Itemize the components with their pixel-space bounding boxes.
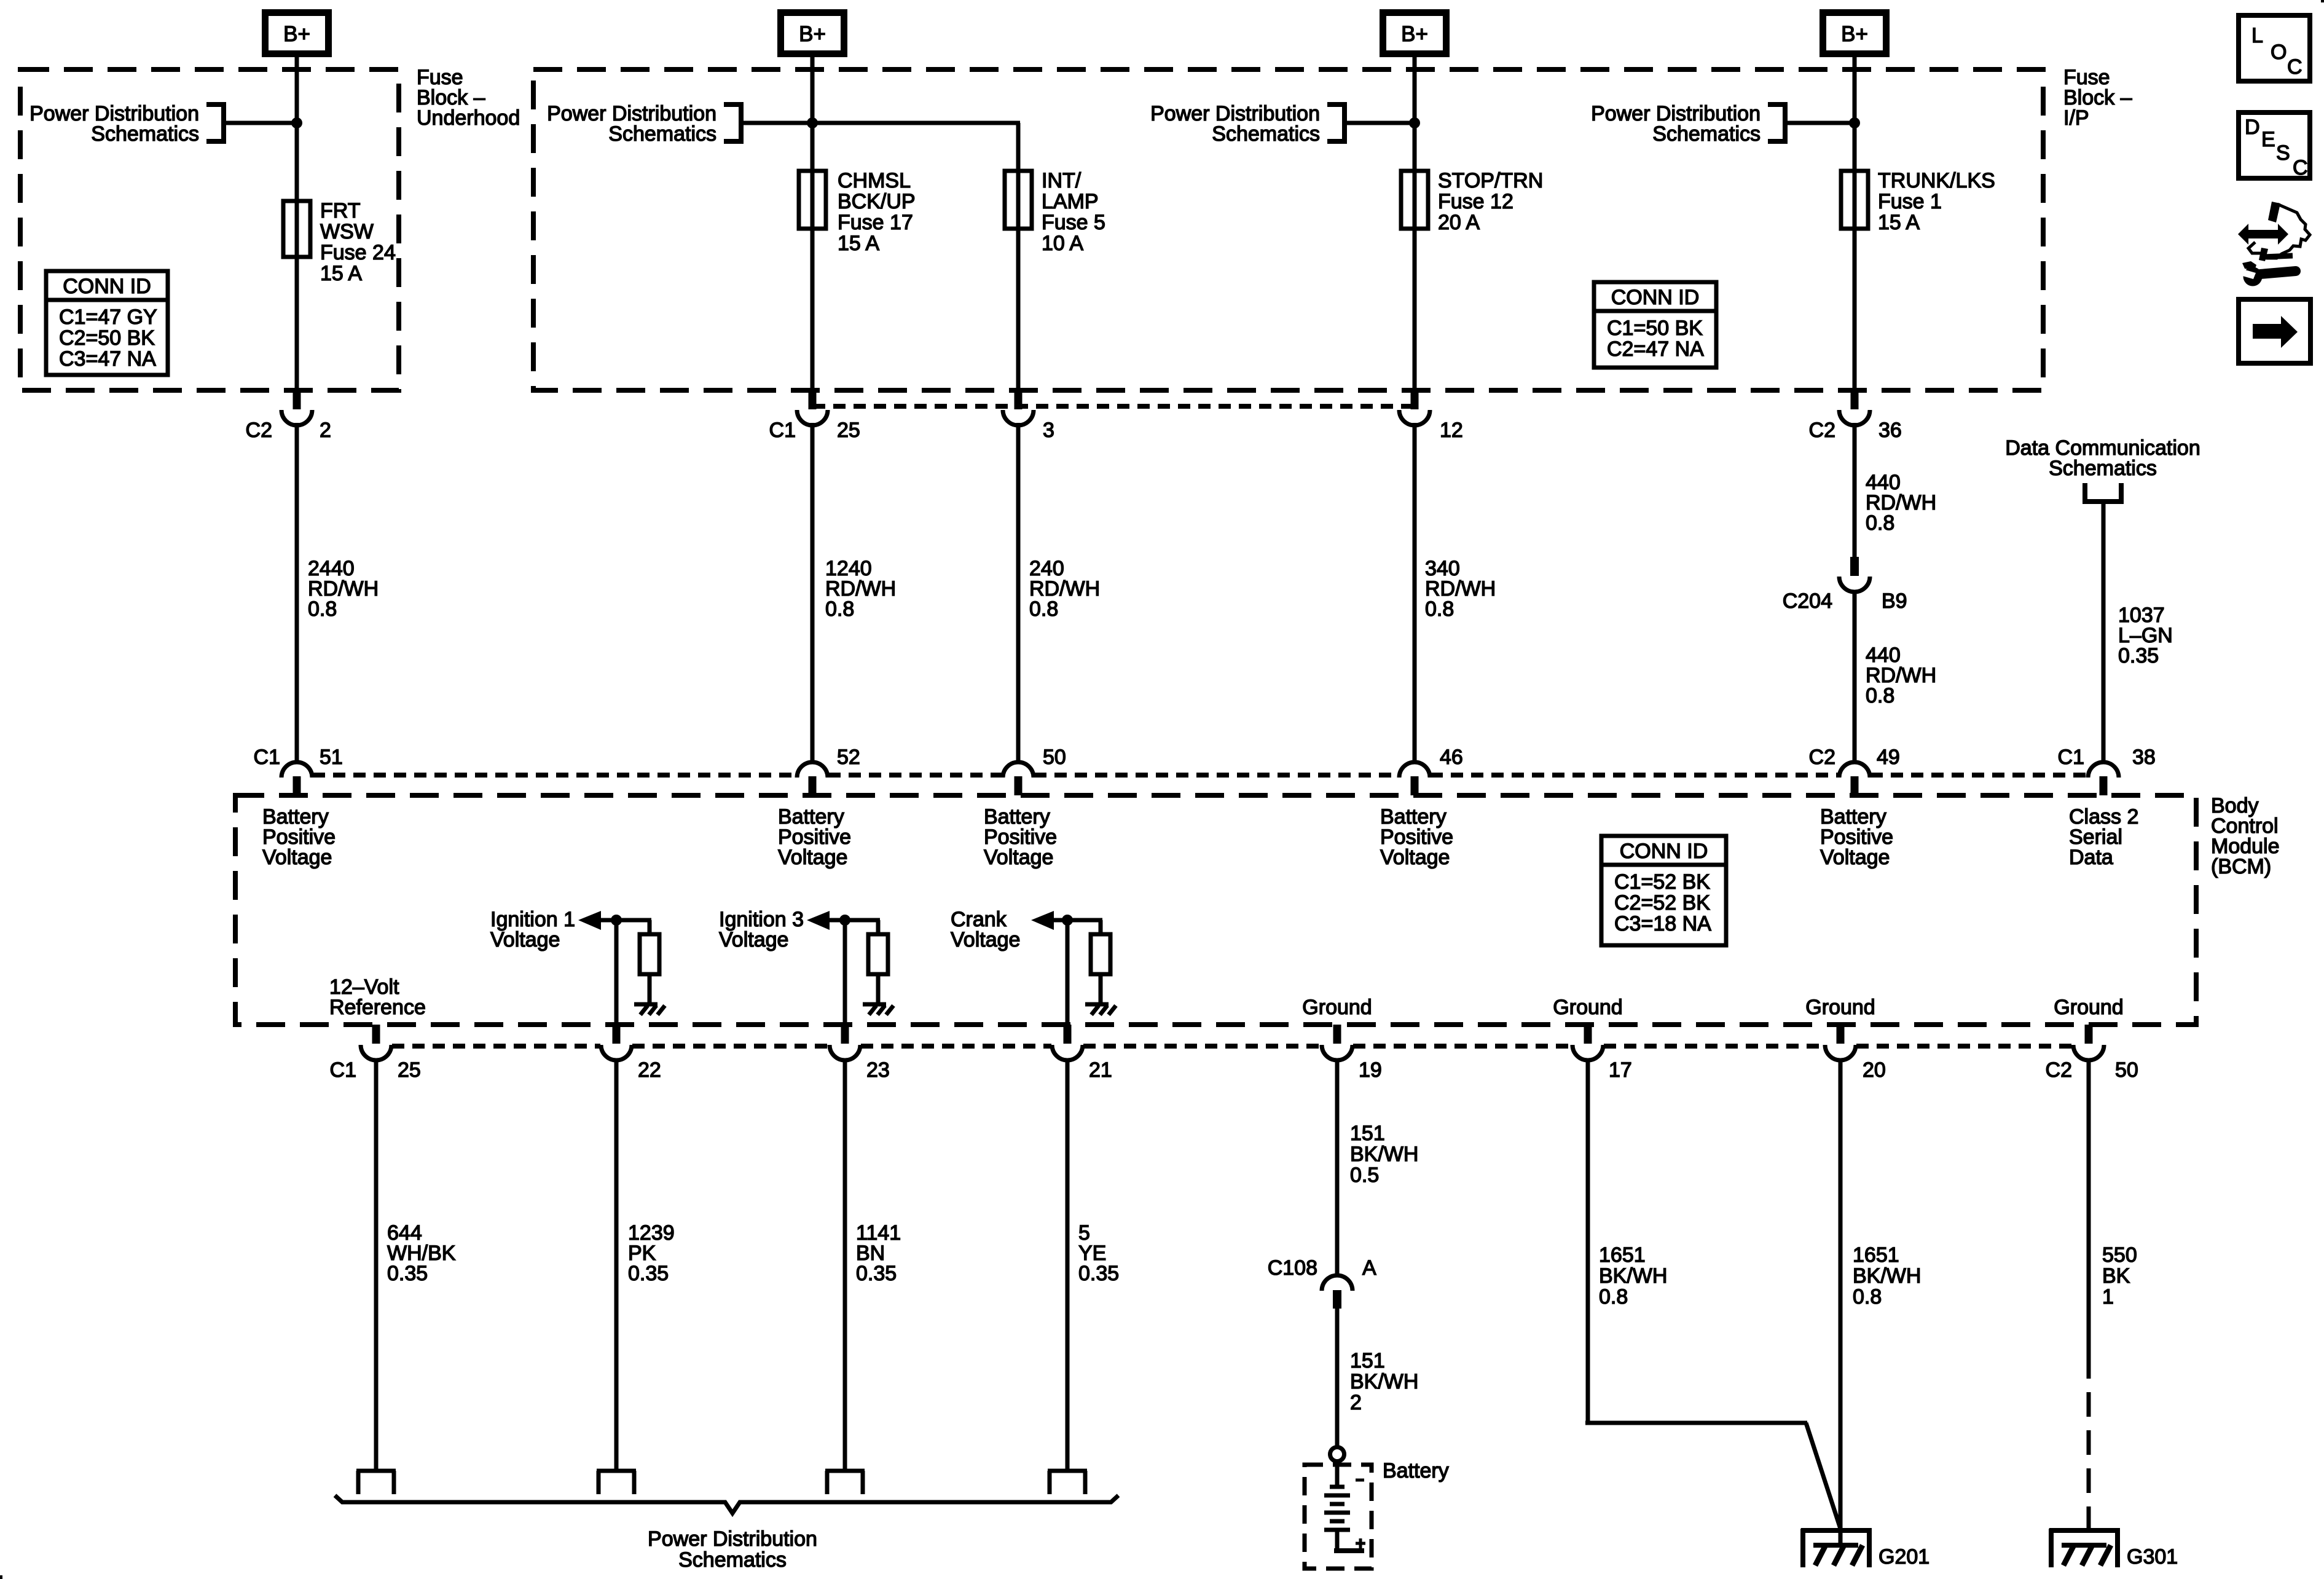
- svg-text:FRT: FRT: [320, 199, 360, 222]
- svg-text:15 A: 15 A: [1878, 211, 1920, 234]
- svg-text:Ground: Ground: [2054, 996, 2123, 1019]
- svg-text:50: 50: [1043, 746, 1066, 769]
- svg-text:S: S: [2276, 141, 2290, 165]
- svg-text:Battery: Battery: [1383, 1459, 1449, 1483]
- svg-text:51: 51: [320, 746, 343, 769]
- svg-text:10 A: 10 A: [1042, 232, 1083, 255]
- svg-text:0.8: 0.8: [1425, 597, 1454, 621]
- svg-text:0.35: 0.35: [2118, 644, 2159, 667]
- svg-text:C: C: [2287, 55, 2302, 79]
- svg-text:Voltage: Voltage: [1820, 846, 1890, 869]
- svg-text:0.8: 0.8: [1599, 1285, 1628, 1309]
- svg-text:3: 3: [1043, 419, 1054, 442]
- svg-text:38: 38: [2132, 746, 2156, 769]
- svg-text:Voltage: Voltage: [1380, 846, 1450, 869]
- svg-text:0.35: 0.35: [1078, 1262, 1119, 1285]
- svg-text:Schematics: Schematics: [608, 122, 716, 146]
- svg-text:C2: C2: [246, 419, 272, 442]
- svg-text:BK/WH: BK/WH: [1350, 1143, 1418, 1166]
- svg-text:Schematics: Schematics: [678, 1548, 787, 1572]
- svg-text:C3=47 NA: C3=47 NA: [59, 347, 156, 371]
- svg-text:B+: B+: [799, 22, 826, 46]
- svg-text:Underhood: Underhood: [417, 106, 520, 130]
- svg-text:D: D: [2245, 116, 2260, 139]
- svg-text:Fuse 5: Fuse 5: [1042, 211, 1105, 234]
- svg-text:20 A: 20 A: [1438, 211, 1480, 234]
- svg-text:I/P: I/P: [2063, 106, 2089, 130]
- svg-text:CHMSL: CHMSL: [838, 169, 911, 192]
- svg-text:WSW: WSW: [320, 220, 374, 243]
- svg-text:O: O: [2271, 41, 2287, 64]
- svg-text:0.8: 0.8: [1866, 684, 1894, 707]
- svg-text:C1: C1: [2058, 746, 2084, 769]
- svg-text:Voltage: Voltage: [778, 846, 847, 869]
- svg-text:C3=18 NA: C3=18 NA: [1614, 912, 1711, 935]
- svg-text:C108: C108: [1268, 1256, 1317, 1280]
- svg-text:C2=52 BK: C2=52 BK: [1614, 891, 1710, 915]
- svg-text:Reference: Reference: [329, 996, 426, 1019]
- svg-text:36: 36: [1878, 419, 1902, 442]
- svg-text:22: 22: [638, 1058, 661, 1082]
- svg-text:0.8: 0.8: [1853, 1285, 1882, 1309]
- svg-text:Voltage: Voltage: [951, 928, 1020, 951]
- svg-text:Ground: Ground: [1302, 996, 1372, 1019]
- svg-text:INT/: INT/: [1042, 169, 1082, 192]
- svg-text:B+: B+: [1401, 22, 1428, 46]
- svg-text:151: 151: [1350, 1122, 1385, 1145]
- svg-text:C2: C2: [2046, 1058, 2072, 1082]
- svg-text:49: 49: [1877, 746, 1900, 769]
- svg-text:C1: C1: [330, 1058, 356, 1082]
- svg-text:C: C: [2293, 156, 2308, 179]
- svg-text:C2=47 NA: C2=47 NA: [1607, 337, 1704, 361]
- svg-text:G301: G301: [2127, 1545, 2178, 1569]
- svg-text:2: 2: [1350, 1391, 1362, 1414]
- svg-text:Schematics: Schematics: [2049, 457, 2157, 480]
- svg-text:B+: B+: [283, 22, 310, 46]
- svg-text:CONN ID: CONN ID: [63, 275, 151, 298]
- svg-text:C204: C204: [1783, 589, 1832, 613]
- svg-text:25: 25: [398, 1058, 421, 1082]
- svg-text:2: 2: [320, 419, 331, 442]
- svg-text:(BCM): (BCM): [2211, 855, 2271, 878]
- svg-text:50: 50: [2115, 1058, 2138, 1082]
- svg-text:STOP/TRN: STOP/TRN: [1438, 169, 1543, 192]
- svg-text:Power Distribution: Power Distribution: [648, 1527, 817, 1551]
- svg-text:C2=50 BK: C2=50 BK: [59, 326, 155, 350]
- svg-text:BK/WH: BK/WH: [1350, 1370, 1418, 1393]
- svg-text:1651: 1651: [1853, 1243, 1899, 1267]
- svg-text:Fuse 17: Fuse 17: [838, 211, 913, 234]
- svg-text:550: 550: [2102, 1243, 2137, 1267]
- svg-text:Fuse 1: Fuse 1: [1878, 190, 1942, 213]
- svg-text:C2: C2: [1809, 746, 1835, 769]
- svg-text:C1: C1: [769, 419, 796, 442]
- svg-text:Ground: Ground: [1553, 996, 1622, 1019]
- svg-text:CONN ID: CONN ID: [1611, 286, 1700, 309]
- svg-text:15 A: 15 A: [320, 262, 362, 285]
- svg-text:B9: B9: [1882, 589, 1907, 613]
- svg-text:1651: 1651: [1599, 1243, 1646, 1267]
- svg-text:LAMP: LAMP: [1042, 190, 1099, 213]
- svg-text:TRUNK/LKS: TRUNK/LKS: [1878, 169, 1995, 192]
- svg-text:0.8: 0.8: [1866, 511, 1894, 535]
- svg-text:C1=52 BK: C1=52 BK: [1614, 870, 1710, 894]
- svg-text:1: 1: [2102, 1285, 2114, 1309]
- svg-text:25: 25: [837, 419, 860, 442]
- svg-text:0.8: 0.8: [825, 597, 854, 621]
- svg-text:0.35: 0.35: [387, 1262, 428, 1285]
- svg-text:C1=50 BK: C1=50 BK: [1607, 317, 1703, 340]
- svg-text:Voltage: Voltage: [490, 928, 560, 951]
- svg-text:21: 21: [1089, 1058, 1112, 1082]
- svg-text:C2: C2: [1809, 419, 1835, 442]
- svg-text:B+: B+: [1841, 22, 1868, 46]
- svg-text:Fuse 24: Fuse 24: [320, 241, 396, 264]
- svg-text:Voltage: Voltage: [984, 846, 1053, 869]
- svg-text:0.35: 0.35: [856, 1262, 897, 1285]
- svg-text:Ground: Ground: [1805, 996, 1875, 1019]
- svg-text:0.35: 0.35: [628, 1262, 669, 1285]
- svg-text:17: 17: [1609, 1058, 1632, 1082]
- svg-text:0.5: 0.5: [1350, 1164, 1379, 1187]
- svg-text:52: 52: [837, 746, 860, 769]
- svg-text:46: 46: [1440, 746, 1463, 769]
- svg-text:Fuse 12: Fuse 12: [1438, 190, 1513, 213]
- svg-text:19: 19: [1359, 1058, 1382, 1082]
- svg-text:L: L: [2251, 24, 2263, 47]
- svg-text:151: 151: [1350, 1349, 1385, 1372]
- svg-text:0.8: 0.8: [308, 597, 337, 621]
- svg-text:C1: C1: [254, 746, 280, 769]
- svg-text:Schematics: Schematics: [1212, 122, 1320, 146]
- svg-text:15 A: 15 A: [838, 232, 879, 255]
- svg-text:23: 23: [866, 1058, 890, 1082]
- svg-text:Schematics: Schematics: [91, 122, 199, 146]
- svg-text:A: A: [1362, 1256, 1376, 1280]
- svg-text:12: 12: [1440, 419, 1463, 442]
- svg-text:Data: Data: [2069, 846, 2113, 869]
- svg-text:Schematics: Schematics: [1652, 122, 1761, 146]
- svg-text:BK/WH: BK/WH: [1853, 1264, 1921, 1288]
- svg-text:G201: G201: [1878, 1545, 1929, 1569]
- svg-text:BK/WH: BK/WH: [1599, 1264, 1667, 1288]
- svg-text:BCK/UP: BCK/UP: [838, 190, 916, 213]
- svg-text:E: E: [2261, 128, 2275, 151]
- svg-text:20: 20: [1863, 1058, 1886, 1082]
- svg-text:Voltage: Voltage: [262, 846, 332, 869]
- svg-text:BK: BK: [2102, 1264, 2130, 1288]
- svg-text:Voltage: Voltage: [719, 928, 788, 951]
- svg-text:CONN ID: CONN ID: [1620, 840, 1708, 863]
- svg-text:C1=47 GY: C1=47 GY: [59, 305, 157, 329]
- svg-text:0.8: 0.8: [1029, 597, 1058, 621]
